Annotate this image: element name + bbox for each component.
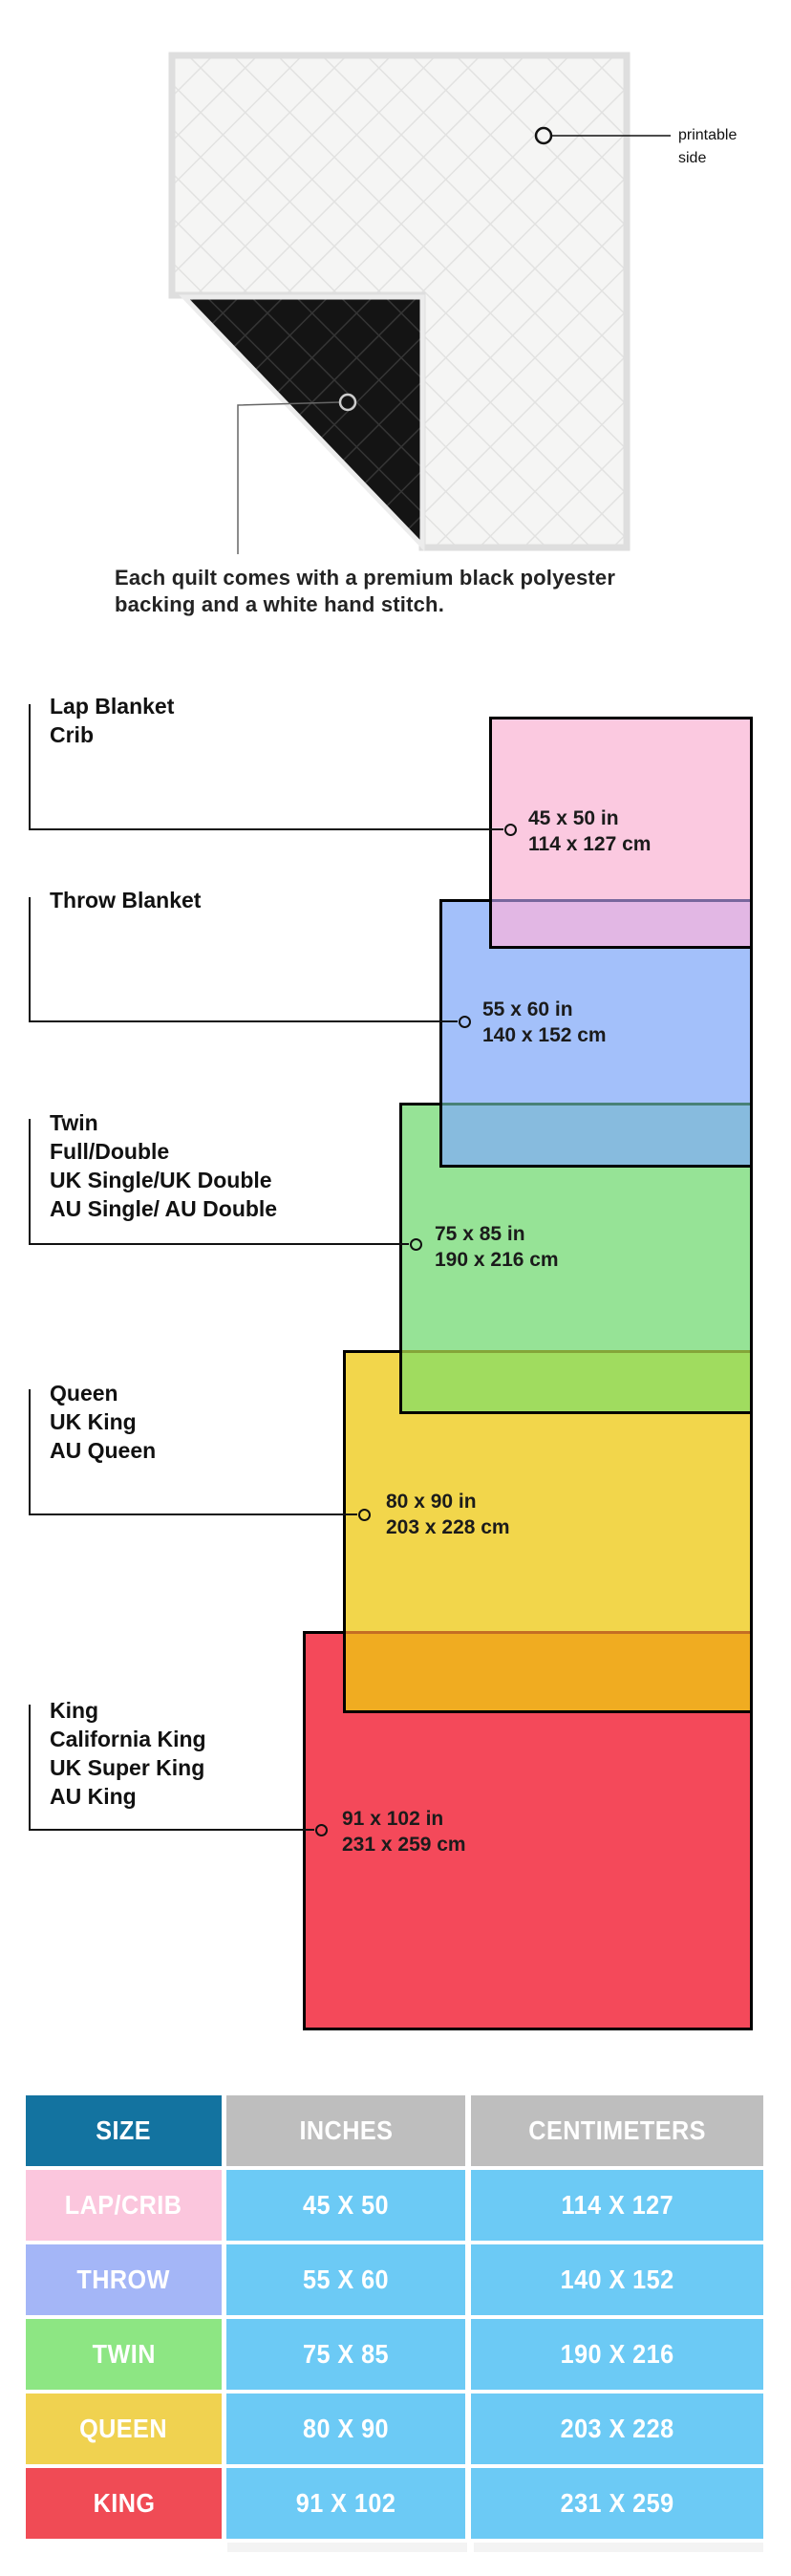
row-inches-cell: 45 X 50 [226,2170,465,2241]
row-size-cell: KING [26,2468,222,2539]
dimension-label-king: 91 x 102 in 231 x 259 cm [342,1806,466,1857]
size-label-line: AU Single/ AU Double [50,1194,277,1223]
row-inches-value: 91 X 102 [296,2488,395,2519]
dimension-label-lap: 45 x 50 in 114 x 127 cm [528,805,651,857]
leader-line-queen-h [29,1513,357,1515]
marker-circle-queen [358,1509,371,1521]
size-label-line: Lap Blanket [50,692,174,720]
table-row-queen: QUEEN 80 X 90 203 X 228 [26,2394,763,2464]
dim-inches: 45 x 50 in [528,805,651,831]
size-label-line: UK King [50,1407,156,1436]
leader-line-lap-h [29,828,503,830]
row-cm-value: 231 X 259 [561,2488,674,2519]
size-label-line: UK Single/UK Double [50,1166,277,1194]
row-inches-cell: 75 X 85 [226,2319,465,2390]
size-label-line: UK Super King [50,1753,206,1782]
size-label-line: California King [50,1725,206,1753]
dimension-label-throw: 55 x 60 in 140 x 152 cm [482,997,607,1048]
dim-cm: 203 x 228 cm [386,1514,510,1540]
marker-circle-king [315,1824,328,1836]
row-inches-cell: 91 X 102 [226,2468,465,2539]
overlap-band-queen-king [346,1631,750,1710]
table-shadow-strip [227,2543,467,2552]
table-header-row: SIZE INCHES CENTIMETERS [26,2095,763,2166]
header-size-label: SIZE [96,2115,152,2146]
row-cm-cell: 231 X 259 [471,2468,763,2539]
size-label-line: Crib [50,720,174,749]
quilt-illustration [0,0,791,631]
dim-inches: 55 x 60 in [482,997,607,1022]
row-cm-cell: 203 X 228 [471,2394,763,2464]
dim-inches: 91 x 102 in [342,1806,466,1832]
dim-cm: 140 x 152 cm [482,1022,607,1048]
row-size-cell: LAP/CRIB [26,2170,222,2241]
overlap-band-throw-twin [442,1103,750,1165]
row-cm-value: 203 X 228 [561,2414,674,2444]
marker-circle-twin [410,1238,422,1251]
size-label-line: Throw Blanket [50,886,201,914]
quilt-caption: Each quilt comes with a premium black po… [115,565,669,618]
overlap-band-twin-queen [402,1350,750,1411]
printable-side-label: printable side [678,124,766,170]
size-label-queen: Queen UK King AU Queen [50,1379,156,1465]
leader-line-lap [29,704,31,830]
row-cm-value: 114 X 127 [561,2190,673,2221]
row-inches-value: 45 X 50 [303,2190,389,2221]
size-guide-page: printable side Each quilt comes with a p… [0,0,791,2576]
size-label-line: Queen [50,1379,156,1407]
row-inches-value: 75 X 85 [303,2339,389,2370]
dim-cm: 190 x 216 cm [435,1247,559,1273]
dim-cm: 231 x 259 cm [342,1832,466,1857]
row-size-cell: TWIN [26,2319,222,2390]
dim-inches: 80 x 90 in [386,1489,510,1514]
dim-cm: 114 x 127 cm [528,831,651,857]
row-size-label: THROW [77,2265,170,2295]
row-cm-cell: 140 X 152 [471,2244,763,2315]
quilt-black-backing-fold [184,297,422,546]
row-cm-cell: 114 X 127 [471,2170,763,2241]
table-row-king: KING 91 X 102 231 X 259 [26,2468,763,2539]
overlap-band-lap-throw [492,899,750,946]
size-label-line: Full/Double [50,1137,277,1166]
header-inches: INCHES [226,2095,465,2166]
dimension-label-queen: 80 x 90 in 203 x 228 cm [386,1489,510,1540]
size-label-line: Twin [50,1108,277,1137]
row-inches-cell: 55 X 60 [226,2244,465,2315]
leader-line-throw [29,897,31,1022]
size-label-line: AU King [50,1782,206,1811]
size-label-throw: Throw Blanket [50,886,201,914]
leader-line-twin [29,1119,31,1245]
table-row-twin: TWIN 75 X 85 190 X 216 [26,2319,763,2390]
table-row-lap-crib: LAP/CRIB 45 X 50 114 X 127 [26,2170,763,2241]
row-size-label: KING [93,2488,155,2519]
header-size: SIZE [26,2095,222,2166]
leader-line-queen [29,1389,31,1515]
row-size-label: LAP/CRIB [65,2190,182,2221]
table-row-throw: THROW 55 X 60 140 X 152 [26,2244,763,2315]
marker-circle-throw [459,1016,471,1028]
header-centimeters: CENTIMETERS [471,2095,763,2166]
marker-circle-lap [504,824,517,836]
leader-line-king-h [29,1829,314,1831]
row-cm-value: 190 X 216 [561,2339,674,2370]
row-inches-value: 55 X 60 [303,2265,389,2295]
size-label-line: AU Queen [50,1436,156,1465]
size-label-king: King California King UK Super King AU Ki… [50,1696,206,1811]
leader-line-twin-h [29,1243,409,1245]
table-shadow-strip [474,2543,763,2552]
leader-line-throw-h [29,1020,458,1022]
row-cm-cell: 190 X 216 [471,2319,763,2390]
header-inches-label: INCHES [299,2115,393,2146]
row-size-label: TWIN [92,2339,155,2370]
header-centimeters-label: CENTIMETERS [528,2115,706,2146]
dimension-label-twin: 75 x 85 in 190 x 216 cm [435,1221,559,1273]
row-inches-value: 80 X 90 [303,2414,389,2444]
row-size-cell: THROW [26,2244,222,2315]
row-size-label: QUEEN [80,2414,168,2444]
row-inches-cell: 80 X 90 [226,2394,465,2464]
size-label-line: King [50,1696,206,1725]
size-label-twin: Twin Full/Double UK Single/UK Double AU … [50,1108,277,1223]
dim-inches: 75 x 85 in [435,1221,559,1247]
row-size-cell: QUEEN [26,2394,222,2464]
row-cm-value: 140 X 152 [561,2265,674,2295]
size-label-lap: Lap Blanket Crib [50,692,174,749]
leader-line-king [29,1705,31,1831]
